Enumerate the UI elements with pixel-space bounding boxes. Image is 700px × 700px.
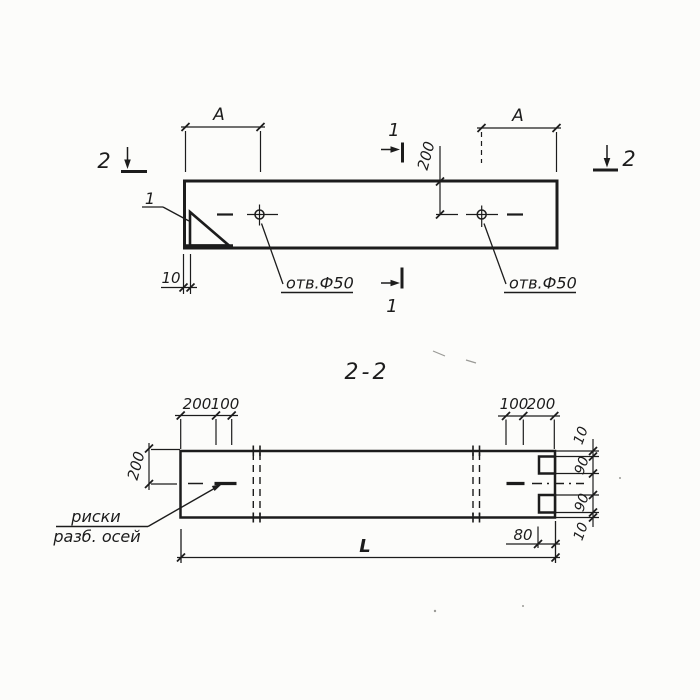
plan-cut2-right-mark [593,145,618,170]
plan-hole-right [466,206,523,228]
section-dim-tl-100-label: 100 [211,395,240,413]
plan-dim-10-label: 10 [161,269,180,287]
section-notch-upper [539,457,555,474]
plan-hole-right-label: отв.Ф50 [509,274,577,293]
plan-dim-a-left-label: A [212,105,225,125]
section-dim-left-200 [145,443,180,490]
plan-dim-a-left [181,123,265,172]
plan-dim-200-label: 200 [414,140,439,172]
section-joint-right [473,446,480,523]
section-dim-left-200-label: 200 [124,450,149,482]
arrow-down-icon [124,160,131,170]
plan-cut2-right-label: 2 [622,147,635,171]
plan-hole-left-label: отв.Ф50 [286,274,354,293]
section-axis-note-line2: разб. осей [52,527,140,546]
section-notch-lower [539,495,555,513]
section-dim-right-10-bottom-label: 10 [571,520,592,542]
plan-cut1-bottom-label: 1 [386,296,397,317]
plan-cut2-left-mark [121,147,147,172]
plan-view [121,123,618,294]
arrow-right-icon [391,280,401,287]
plan-cut1-bottom-mark [381,268,402,289]
section-dim-tr-200-label: 200 [527,395,556,413]
section-dim-tl-200-label: 200 [183,395,212,413]
plan-detail-leader [142,207,189,221]
technical-drawing: A A 200 1 1 2 2 1 отв.Ф50 отв.Ф50 10 [0,0,700,700]
section-dim-right-10-top-label: 10 [571,424,592,446]
plan-detail-ref-label: 1 [145,189,155,208]
plan-cut1-top-label: 1 [388,120,399,141]
plan-cut2-left-label: 2 [97,149,110,173]
section-joint-left [253,446,260,523]
plan-beam-outline [185,181,558,248]
arrow-down-icon [604,158,611,168]
section-outline [181,451,556,518]
section-axis-note-line1: риски [70,507,120,526]
drawing-sheet: A A 200 1 1 2 2 1 отв.Ф50 отв.Ф50 10 [0,0,700,700]
plan-cut1-top-mark [381,143,403,163]
arrow-up-right-icon [212,484,222,491]
section-dim-80-label: 80 [513,526,532,544]
plan-dim-a-right-label: A [511,106,524,126]
plan-hole-left [217,205,278,226]
section-dim-top-left [175,412,238,450]
arrow-right-icon [391,146,401,153]
section-dim-top-right [498,412,560,449]
plan-dim-a-right [477,124,561,172]
plan-gusset-triangle [185,212,233,246]
section-dim-tr-100-label: 100 [500,395,529,413]
section-title: 2-2 [345,360,390,385]
section-dim-length-label: L [359,536,370,557]
